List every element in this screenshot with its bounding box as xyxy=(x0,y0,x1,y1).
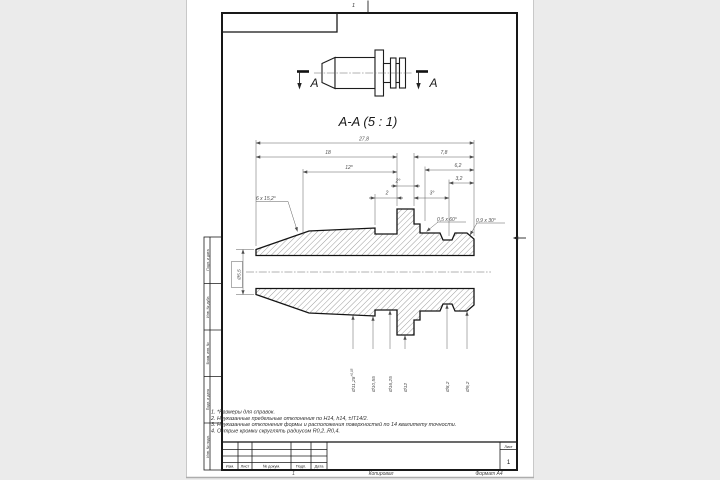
title-col-doc: № докум. xyxy=(263,464,281,469)
copied-label: Копировал xyxy=(369,471,394,477)
drawing-sheet: 1 Подп. и дата Инв. № дубл. Взам. инв. №… xyxy=(0,0,720,480)
drawing-viewer: 1 Подп. и дата Инв. № дубл. Взам. инв. №… xyxy=(0,0,720,480)
strip-label: Инв. № подл. xyxy=(206,435,210,457)
dim-flange-angle: 2° xyxy=(395,179,401,185)
footer-mark: 1 xyxy=(292,471,295,477)
strip-label: Инв. № дубл. xyxy=(206,296,210,318)
section-title: A-A (5 : 1) xyxy=(338,114,398,129)
dim-end-length: 3,2 xyxy=(456,176,463,182)
dim-dia-4: Ø12 xyxy=(403,383,409,393)
cut-letter: A xyxy=(429,76,438,90)
title-col-list: Лист xyxy=(241,464,250,469)
dim-ref-length: 12* xyxy=(345,165,354,171)
dim-dia-3: Ø16,25 xyxy=(388,376,394,393)
note-line: 2. Неуказанные предельные отклонения по … xyxy=(210,416,368,422)
sheet-label: Лист xyxy=(504,445,513,449)
dim-right-length: 7,8 xyxy=(441,150,448,156)
strip-label: Взам. инв. № xyxy=(206,342,210,364)
format-label: Формат А4 xyxy=(475,471,503,477)
title-col-podp: Подп. xyxy=(296,464,307,469)
title-col-izm: Изм. xyxy=(226,464,235,469)
dim-dia-6: Ø9,2 xyxy=(465,381,471,393)
zone-mark-top: 1 xyxy=(352,3,355,9)
dim-nose-chamfer: 6 x 15,2° xyxy=(256,196,276,202)
strip-label: Подп. и дата xyxy=(206,389,210,410)
dim-overall-length: 27,8 xyxy=(358,137,369,143)
cut-letter: A xyxy=(310,76,319,90)
dim-step-length: 2 xyxy=(385,191,389,197)
dim-dia-5: Ø8,2 xyxy=(445,381,451,393)
dim-left-length: 18 xyxy=(325,150,331,156)
note-line: 3. Неуказанные отклонения формы и распол… xyxy=(211,421,456,428)
dim-tip-diameter: Ø5,5 xyxy=(236,269,242,281)
title-col-data: Дата xyxy=(315,464,325,469)
dim-collar-length: 6,2 xyxy=(455,163,462,169)
strip-label: Подп. и дата xyxy=(206,249,210,270)
dim-collar-angle: 3° xyxy=(430,191,435,197)
dim-dia-2: Ø10,55 xyxy=(371,376,377,393)
note-line: 4. Острые кромки скруглять радиусом R0,2… xyxy=(211,428,340,434)
note-line: 1. *Размеры для справок. xyxy=(211,410,275,416)
